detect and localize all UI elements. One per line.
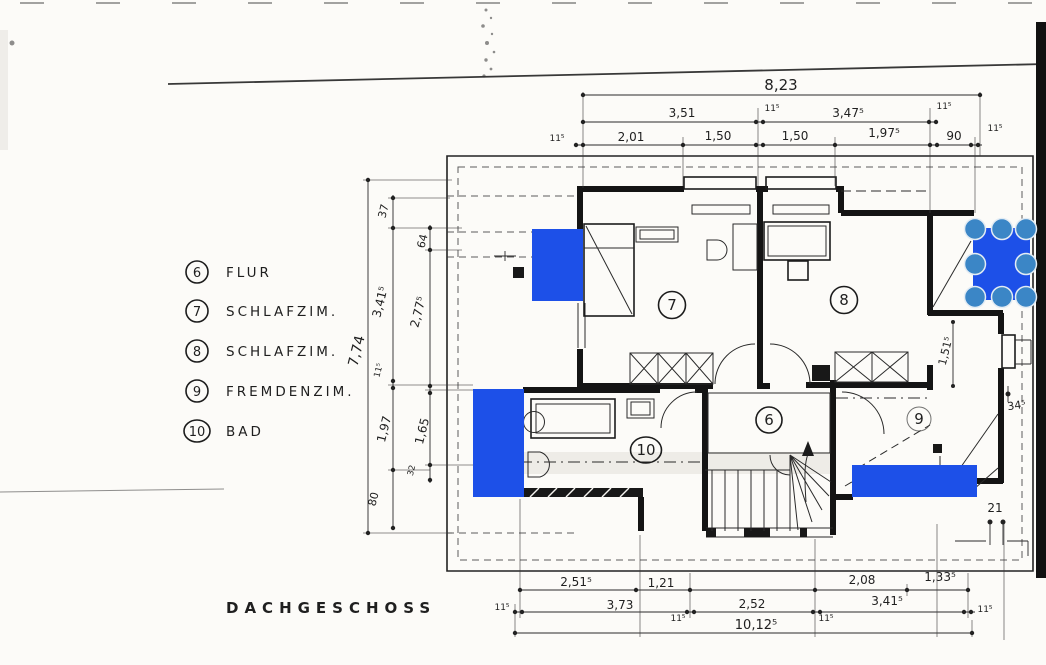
legend: 6 FLUR 7 SCHLAFZIM. 8 SCHLAFZIM. 9 FREMD… <box>184 261 355 442</box>
dim-top-r2-3: 11⁵ <box>936 102 951 112</box>
dim-top-r3-2: 1,50 <box>705 129 732 143</box>
selection-handle-se[interactable] <box>1016 287 1037 308</box>
dim-left-a1: 3,41⁵ <box>370 285 391 319</box>
legend-label-schlafzim-7: SCHLAFZIM. <box>226 304 338 320</box>
dimension-top: 8,23 3,51 11⁵ 3,47⁵ 11⁵ 11⁵ 2,01 1,50 1,… <box>549 76 1002 213</box>
annotation-rect-window-west-top[interactable] <box>532 229 583 301</box>
dim-bot-r1-0: 2,51⁵ <box>560 575 592 589</box>
room-labels: 7 8 6 9 10 <box>631 287 932 464</box>
dim-top-r2-0: 3,51 <box>669 106 696 120</box>
dim-left-b3: 32 <box>406 464 418 477</box>
stairs-up-arrow <box>802 441 814 456</box>
dim-top-r3-1: 2,01 <box>618 130 645 144</box>
legend-label-bad: BAD <box>226 424 264 440</box>
dim-bot-r2-5: 3,41⁵ <box>871 594 903 608</box>
page-title: DACHGESCHOSS <box>226 599 436 617</box>
dim-right-wall: 1,51⁵ <box>936 336 956 367</box>
floorplan-canvas: 7 8 6 9 10 8,23 3,51 11⁵ 3,47⁵ 11⁵ 11⁵ 2… <box>0 0 1046 665</box>
legend-num-8: 8 <box>193 345 201 360</box>
dim-left-a2: 11⁵ <box>372 362 385 378</box>
dimension-bottom: 2,51⁵ 1,21 2,08 1,33⁵ 11⁵ 3,73 11⁵ 2,52 … <box>494 499 1004 640</box>
dim-top-r2-1: 11⁵ <box>764 104 779 114</box>
dim-top-r3-0: 11⁵ <box>549 134 564 144</box>
selection-handle-n[interactable] <box>992 219 1013 240</box>
annotation-selected[interactable] <box>965 219 1037 308</box>
dim-bot-r1-3: 1,33⁵ <box>924 570 956 584</box>
dimension-left: 7,74 37 3,41⁵ 11⁵ 1,97 80 64 2,77⁵ 1,65 … <box>346 178 475 535</box>
legend-num-9: 9 <box>193 385 201 400</box>
dim-left-a4: 80 <box>366 491 382 508</box>
dim-bot-r2-2: 11⁵ <box>670 614 685 624</box>
dim-right-bottom: 21 <box>987 501 1002 515</box>
room-label-6: 6 <box>764 411 774 429</box>
dim-left-b1: 2,77⁵ <box>408 295 429 329</box>
selection-handle-e[interactable] <box>1016 254 1037 275</box>
legend-label-flur: FLUR <box>226 265 272 281</box>
dim-bot-r2-0: 11⁵ <box>494 603 509 613</box>
selection-handle-nw[interactable] <box>965 219 986 240</box>
dim-bot-r2-3: 2,52 <box>739 597 766 611</box>
legend-label-schlafzim-8: SCHLAFZIM. <box>226 344 338 360</box>
dim-left-a0: 37 <box>376 203 392 220</box>
dim-top-r3-5: 90 <box>946 129 961 143</box>
dimension-right: 1,51⁵ 34⁵ 21 <box>936 320 1028 556</box>
dim-left-b0: 64 <box>415 233 431 250</box>
dim-bot-r2-4: 11⁵ <box>818 614 833 624</box>
dim-left-b2: 1,65 <box>412 416 432 445</box>
dim-top-total: 8,23 <box>764 76 797 94</box>
room-label-10: 10 <box>636 441 655 459</box>
legend-num-10: 10 <box>189 425 206 440</box>
scan-edge-strip <box>1036 22 1046 578</box>
dim-left-a3: 1,97 <box>374 414 394 443</box>
dim-top-r3-3: 1,50 <box>782 129 809 143</box>
dim-bot-r1-1: 1,21 <box>648 576 675 590</box>
dim-top-r3-6: 11⁵ <box>987 124 1002 134</box>
annotation-rect-window-south[interactable] <box>852 465 977 497</box>
selection-handle-sw[interactable] <box>965 287 986 308</box>
annotation-rect-window-west-bottom[interactable] <box>473 389 524 497</box>
room-label-8: 8 <box>839 291 849 309</box>
dim-left-total: 7,74 <box>346 334 369 368</box>
selection-handle-s[interactable] <box>992 287 1013 308</box>
dim-right-offset: 34⁵ <box>1006 398 1026 413</box>
selection-handle-w[interactable] <box>965 254 986 275</box>
dim-bot-total: 10,12⁵ <box>735 618 777 633</box>
dim-top-r2-2: 3,47⁵ <box>832 106 864 120</box>
dim-bot-r2-6: 11⁵ <box>977 605 992 615</box>
floorplan-page: 7 8 6 9 10 8,23 3,51 11⁵ 3,47⁵ 11⁵ 11⁵ 2… <box>0 0 1046 665</box>
selection-handle-ne[interactable] <box>1016 219 1037 240</box>
dim-top-r3-4: 1,97⁵ <box>868 126 900 140</box>
legend-num-6: 6 <box>193 266 201 281</box>
room-label-7: 7 <box>667 296 677 314</box>
legend-label-fremdenzim: FREMDENZIM. <box>226 384 355 400</box>
ink-spray <box>481 9 495 78</box>
dim-bot-r1-2: 2,08 <box>849 573 876 587</box>
dim-bot-r2-1: 3,73 <box>607 598 634 612</box>
legend-num-7: 7 <box>193 305 201 320</box>
room-label-9: 9 <box>914 410 924 428</box>
